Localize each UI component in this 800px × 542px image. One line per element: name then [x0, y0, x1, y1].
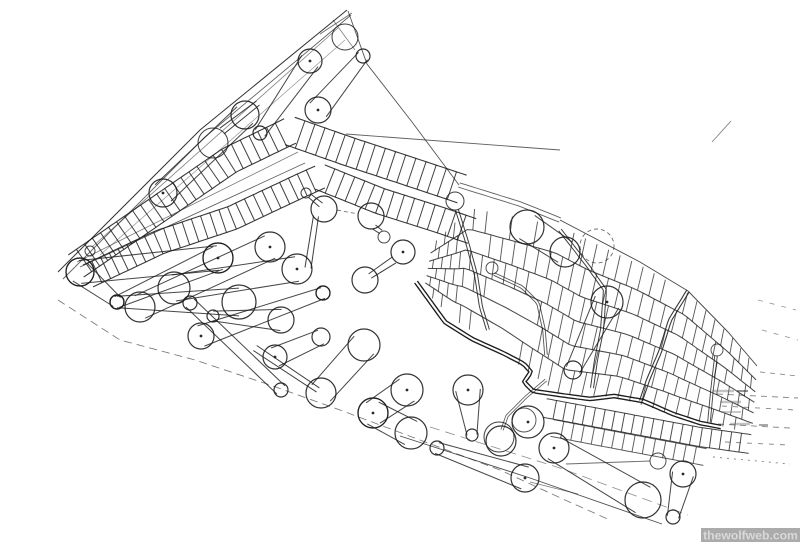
svg-text:thewolfweb.com: thewolfweb.com [703, 529, 798, 542]
